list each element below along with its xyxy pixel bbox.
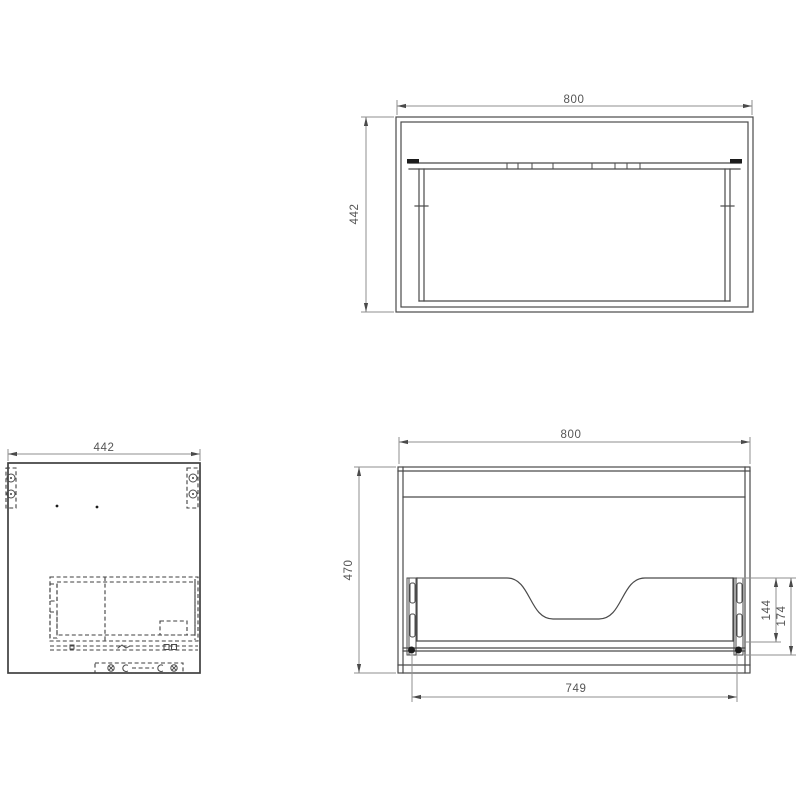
dim-label-front-width: 800: [561, 429, 582, 441]
dim-label-front-height: 470: [343, 560, 355, 581]
dim-label-back-width: 800: [564, 94, 585, 106]
drawer-slide-left: [407, 578, 416, 655]
slide-wheel-right: [735, 647, 742, 654]
side-view: 442: [6, 442, 200, 673]
cabinet-carcass-front: [398, 467, 750, 673]
runner-wheel-front: [108, 665, 114, 671]
dim-front-width: 800: [399, 429, 750, 464]
hidden-drawer-assembly: [50, 577, 198, 650]
drawer-back-panel: [409, 163, 740, 301]
runner-clip-front: [123, 665, 128, 672]
dim-back-width: 800: [397, 94, 752, 115]
slide-wheel-left: [408, 647, 415, 654]
cabinet-carcass-back: [396, 117, 753, 312]
dim-back-height: 442: [349, 117, 394, 312]
dim-opening-width: 749: [412, 653, 737, 702]
drawer-box-front: [417, 578, 733, 641]
corner-bracket-left: [407, 159, 419, 164]
dowel-hole-back: [96, 506, 99, 509]
basin-cutout: [417, 578, 733, 619]
front-view: 800 470 749 144: [343, 429, 796, 702]
hidden-slide-runner: [95, 663, 183, 673]
corner-bracket-right: [730, 159, 742, 164]
dim-label-drawer-front-height: 174: [776, 606, 788, 627]
rail-joint-ticks: [507, 163, 640, 169]
wall-bracket-right: [187, 468, 198, 508]
runner-clip-back: [158, 665, 163, 672]
dim-label-cutout-height: 144: [761, 600, 773, 621]
dim-label-side-depth: 442: [94, 442, 115, 454]
dim-label-opening-width: 749: [566, 683, 587, 695]
runner-wheel-back: [171, 665, 177, 671]
drawer-slide-right: [734, 578, 743, 655]
dowel-hole-front: [56, 505, 59, 508]
dim-front-height: 470: [343, 467, 396, 673]
dim-side-depth: 442: [8, 442, 200, 461]
back-view: 800 442: [349, 94, 753, 312]
technical-drawing: 800 442: [0, 0, 800, 800]
dim-label-back-height: 442: [349, 204, 361, 225]
